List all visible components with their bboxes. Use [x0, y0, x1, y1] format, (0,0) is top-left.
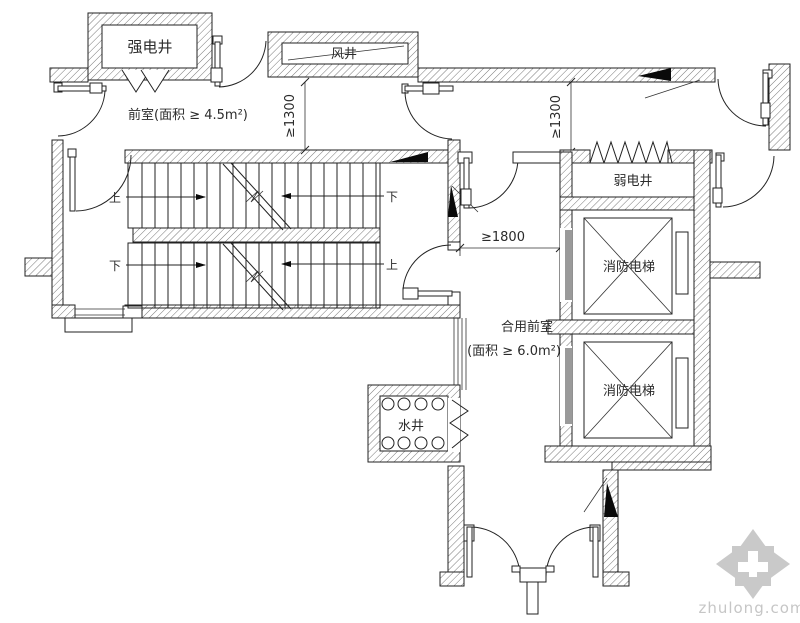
strong-electric-shaft-label: 强电井 [127, 38, 172, 56]
strong-electric-shaft: 强电井 [88, 13, 212, 92]
step [65, 318, 132, 332]
shared-front-room-area: (面积 ≥ 6.0m²) [467, 344, 561, 359]
door-corridor-right-upper [718, 70, 772, 126]
door-corridor-upper [402, 83, 453, 139]
shared-front-room-title: 合用前室 [501, 319, 553, 335]
dimension-shared-front-room: ≥1800 [456, 230, 564, 256]
weak-electric-shaft: 弱电井 [513, 142, 712, 462]
dimension-text: ≥1300 [283, 94, 298, 138]
fire-elevator-label: 消防电梯 [603, 383, 655, 399]
fire-elevator-label: 消防电梯 [603, 259, 655, 275]
stair-flight-lower [128, 243, 380, 308]
elevator-door [565, 348, 572, 424]
stairwell: 上 下 下 上 [52, 140, 478, 332]
fire-elevator-shaft-1: 消防电梯 [560, 218, 688, 314]
water-shaft-label: 水井 [398, 419, 424, 434]
stair-up-label: 上 [386, 258, 398, 272]
elevator-bottom-wall [545, 446, 711, 462]
door-stair-entry [68, 149, 131, 211]
air-shaft: 风井 [268, 32, 418, 77]
elevator-bottom-wall-strip [612, 462, 711, 470]
zhulong-logo [716, 529, 790, 599]
stair-down-label: 下 [109, 259, 121, 273]
floor-plan-page: 强电井 风井 前室(面积 ≥ 4.5m²) [0, 0, 800, 623]
fire-elevator-shaft-2: 消防电梯 [560, 342, 688, 438]
elevator-divider-wall [548, 320, 694, 334]
vent-symbol [141, 70, 169, 92]
door-stair-lower [403, 245, 452, 299]
weak-electric-shaft-label: 弱电井 [613, 174, 652, 189]
door-mullion [512, 566, 554, 614]
elevator-door [565, 230, 572, 300]
front-room-label: 前室(面积 ≥ 4.5m²) [128, 107, 248, 123]
dimension-text: ≥1800 [481, 230, 525, 245]
flex-connection-zigzag [590, 142, 672, 163]
stair-down-label: 下 [386, 190, 398, 204]
door-front-room-top [211, 36, 266, 87]
door-shared-front-room-upper [458, 152, 518, 208]
door-corridor-right-lower [713, 153, 774, 207]
door-front-room-exterior [54, 83, 106, 136]
dimension-text: ≥1300 [549, 95, 564, 139]
shared-front-room-label: 合用前室 (面积 ≥ 6.0m²) [467, 319, 561, 359]
watermark: zhulong.com [698, 529, 800, 617]
counterweight [676, 232, 688, 294]
dimension-front-room: ≥1300 [283, 78, 309, 154]
watermark-text: zhulong.com [698, 599, 800, 617]
entrance [440, 466, 629, 614]
floor-plan-drawing: 强电井 风井 前室(面积 ≥ 4.5m²) [0, 0, 800, 623]
air-shaft-label: 风井 [331, 47, 357, 62]
counterweight [676, 358, 688, 428]
dimension-elevator-lobby: ≥1300 [549, 78, 575, 156]
water-shaft: 水井 [368, 318, 468, 484]
